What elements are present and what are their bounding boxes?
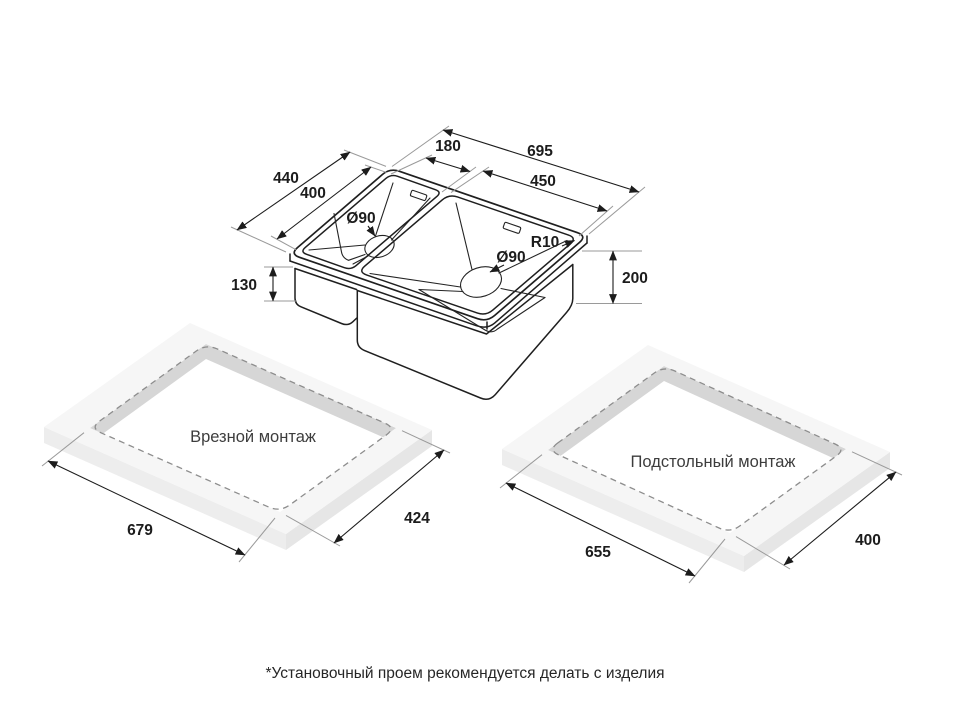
dim-under-length: 655 xyxy=(585,544,611,561)
dim-overall-length: 695 xyxy=(527,143,553,160)
dim-line-440 xyxy=(237,152,350,230)
dim-bowl-depth: 400 xyxy=(300,185,326,202)
small-bowl-underbox xyxy=(295,269,357,325)
inset-mount-label: Врезной монтаж xyxy=(190,428,316,446)
dim-small-drain: Ø90 xyxy=(346,210,375,227)
large-bowl-interior xyxy=(370,203,567,332)
dim-corner-radius: R10 xyxy=(531,234,559,251)
dim-large-drain: Ø90 xyxy=(496,249,525,266)
dim-large-bowl-height: 200 xyxy=(622,270,648,287)
sink-dimensions: 695 180 450 440 400 130 200 Ø90 R xyxy=(231,126,648,304)
dim-line-180 xyxy=(426,158,470,172)
dim-small-bowl-height: 130 xyxy=(231,277,257,294)
footnote: *Установочный проем рекомендуется делать… xyxy=(265,665,664,682)
rim-underside-edge xyxy=(290,243,587,327)
large-bowl-overflow xyxy=(503,222,521,234)
inset-mount-panel: Врезной монтаж 679 424 xyxy=(42,323,450,562)
dim-inset-width: 424 xyxy=(404,510,430,527)
sink-drawing xyxy=(290,170,587,399)
leader-large-drain xyxy=(490,265,504,272)
undermount-label: Подстольный монтаж xyxy=(631,453,796,471)
dim-under-width: 400 xyxy=(855,532,881,549)
dim-large-bowl-width: 450 xyxy=(530,173,556,190)
dim-inset-length: 679 xyxy=(127,522,153,539)
technical-drawing-page: Врезной монтаж 679 424 Подстольный монта… xyxy=(0,0,960,709)
dim-overall-depth: 440 xyxy=(273,170,299,187)
sink-installation-diagram: Врезной монтаж 679 424 Подстольный монта… xyxy=(0,0,960,709)
leader-small-drain xyxy=(368,226,375,236)
small-underbox-top-edge xyxy=(295,269,357,290)
small-bowl-overflow xyxy=(410,190,427,201)
large-bowl-underbox xyxy=(357,265,573,400)
undermount-panel: Подстольный монтаж 655 400 xyxy=(500,345,902,583)
dim-small-bowl-width: 180 xyxy=(435,138,461,155)
